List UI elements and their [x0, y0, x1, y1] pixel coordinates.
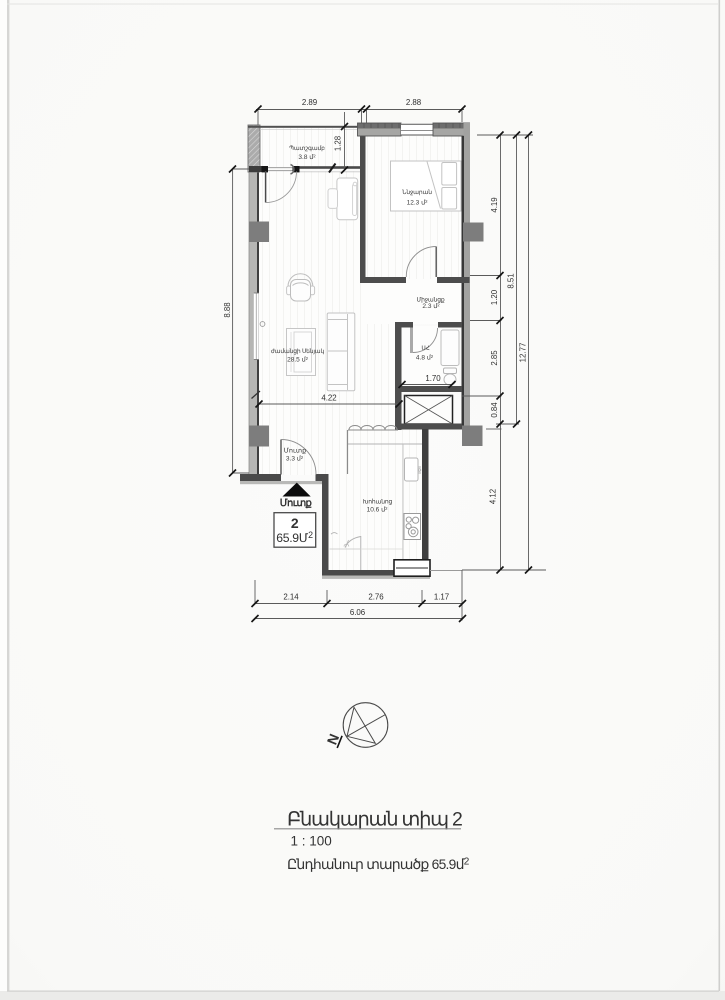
svg-text:12.3 մ²: 12.3 մ²	[407, 199, 429, 207]
svg-text:ժամանցի Սենյակ: ժամանցի Սենյակ	[271, 348, 325, 355]
svg-text:4.12: 4.12	[489, 489, 498, 504]
svg-text:1 : 100: 1 : 100	[291, 834, 332, 849]
svg-text:2.76: 2.76	[368, 593, 384, 602]
svg-text:3.8 մ²: 3.8 մ²	[298, 153, 316, 161]
svg-text:2: 2	[291, 515, 299, 531]
svg-text:6.06: 6.06	[350, 608, 366, 617]
svg-text:1.17: 1.17	[434, 593, 449, 602]
svg-text:12.77: 12.77	[519, 343, 528, 363]
svg-text:28.5 մ²: 28.5 մ²	[287, 356, 309, 364]
svg-text:Ընդհանուր տարածք 65.9մ2: Ընդհանուր տարածք 65.9մ2	[287, 857, 470, 873]
svg-text:1.28: 1.28	[334, 135, 343, 151]
svg-text:Խոհանոց: Խոհանոց	[363, 499, 393, 506]
svg-text:2.88: 2.88	[406, 98, 422, 107]
svg-text:Մուտք: Մուտք	[284, 447, 307, 455]
svg-text:8.51: 8.51	[507, 273, 516, 288]
svg-text:2.3 մ²: 2.3 մ²	[422, 302, 440, 310]
svg-text:4.22: 4.22	[321, 394, 336, 403]
svg-text:1.70: 1.70	[425, 374, 441, 383]
svg-text:65.9Մ2: 65.9Մ2	[276, 530, 313, 545]
svg-text:Բնակարան տիպ 2: Բնակարան տիպ 2	[287, 809, 462, 831]
svg-text:0.84: 0.84	[490, 402, 499, 418]
svg-text:ՍՀ: ՍՀ	[421, 345, 429, 352]
svg-text:1.20: 1.20	[490, 289, 499, 305]
svg-text:8.88: 8.88	[223, 302, 232, 318]
svg-text:2.85: 2.85	[490, 350, 499, 366]
svg-text:3.3 մ²: 3.3 մ²	[286, 455, 304, 463]
svg-text:Պատշգամբ: Պատշգամբ	[289, 145, 325, 152]
svg-text:Ննջարան: Ննջարան	[402, 189, 432, 196]
svg-text:Մուտք: Մուտք	[280, 498, 312, 509]
svg-text:2.14: 2.14	[283, 593, 299, 602]
svg-text:2.89: 2.89	[302, 98, 318, 107]
svg-text:4.8 մ²: 4.8 մ²	[416, 354, 434, 362]
svg-text:10.6 մ²: 10.6 մ²	[367, 506, 389, 514]
svg-text:4.19: 4.19	[490, 197, 499, 213]
